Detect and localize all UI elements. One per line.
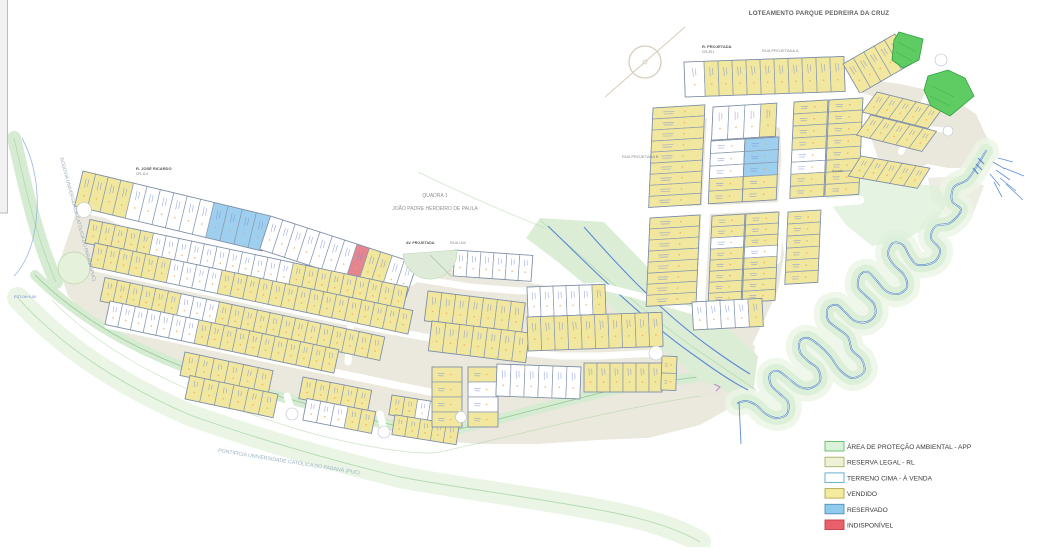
svg-text:R. JOSÉ RICARDO: R. JOSÉ RICARDO [136, 166, 172, 171]
svg-text:ÁREA DE PROTEÇÃO AMBIENTAL - A: ÁREA DE PROTEÇÃO AMBIENTAL - APP [847, 442, 972, 451]
svg-text:EST-04+0,00: EST-04+0,00 [14, 295, 36, 299]
svg-text:LOTEAMENTO PARQUE PEDREIRA DA: LOTEAMENTO PARQUE PEDREIRA DA CRUZ [749, 10, 890, 17]
svg-text:AV. PROJETADA: AV. PROJETADA [406, 241, 435, 245]
svg-text:RESERVA LEGAL - RL: RESERVA LEGAL - RL [847, 460, 915, 467]
svg-text:VENDIDO: VENDIDO [847, 491, 877, 498]
svg-text:QUADRA 1: QUADRA 1 [422, 193, 448, 199]
svg-text:RUA PROJETADA A: RUA PROJETADA A [762, 48, 799, 53]
svg-text:R. PROJETADA: R. PROJETADA [702, 44, 732, 49]
svg-text:CR-201: CR-201 [702, 50, 714, 54]
svg-text:JOÃO PADRE HERDEIRO DE PAULA: JOÃO PADRE HERDEIRO DE PAULA [392, 205, 478, 212]
svg-text:CR-114: CR-114 [136, 172, 148, 176]
svg-text:INDISPONÍVEL: INDISPONÍVEL [847, 521, 894, 530]
svg-text:RUA UM: RUA UM [450, 240, 466, 245]
svg-text:TERRENO CIMA - À VENDA: TERRENO CIMA - À VENDA [847, 473, 933, 482]
svg-text:Açude: Açude [832, 168, 844, 173]
svg-text:RUA PROJETADA B: RUA PROJETADA B [622, 154, 659, 159]
svg-text:RESERVADO: RESERVADO [847, 507, 888, 514]
